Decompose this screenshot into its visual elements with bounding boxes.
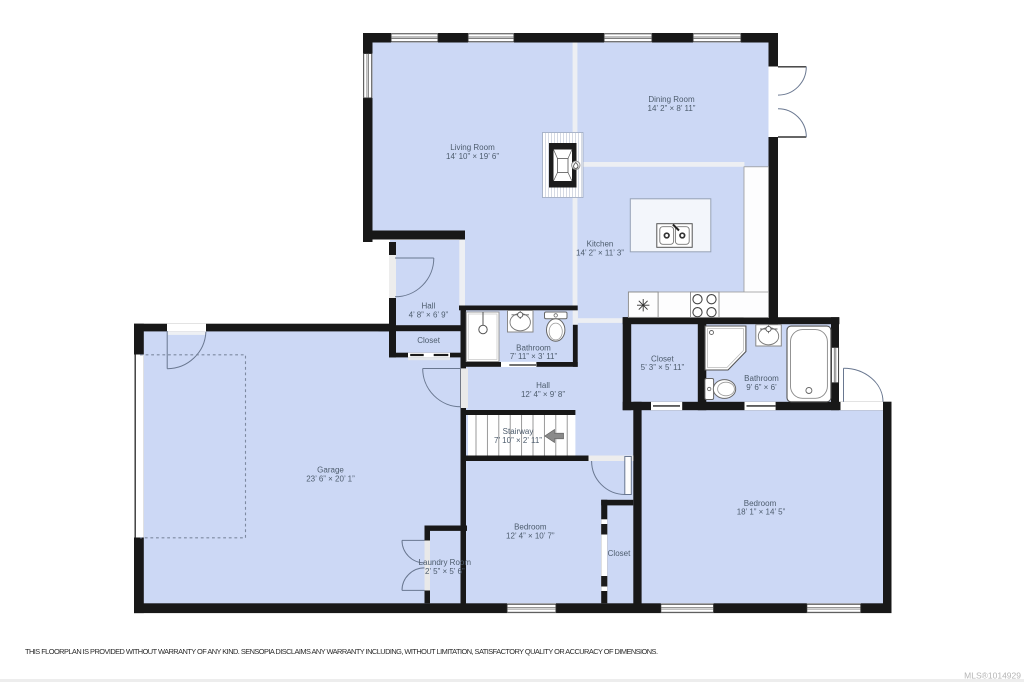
svg-text:7’ 11” × 3’ 11”: 7’ 11” × 3’ 11”	[510, 352, 558, 361]
svg-text:14’ 2” × 8’ 11”: 14’ 2” × 8’ 11”	[648, 104, 696, 113]
svg-text:Hall: Hall	[422, 302, 436, 311]
svg-text:Closet: Closet	[608, 549, 631, 558]
svg-text:Garage: Garage	[317, 466, 344, 475]
svg-text:THIS FLOORPLAN IS PROVIDED WIT: THIS FLOORPLAN IS PROVIDED WITHOUT WARRA…	[25, 647, 658, 656]
svg-text:Laundry Room: Laundry Room	[419, 558, 472, 567]
svg-text:14’ 10” × 19’ 6”: 14’ 10” × 19’ 6”	[446, 152, 499, 161]
svg-text:Dining Room: Dining Room	[648, 95, 695, 104]
svg-text:14’ 2” × 11’ 3”: 14’ 2” × 11’ 3”	[576, 248, 624, 257]
svg-text:Stairway: Stairway	[503, 427, 534, 436]
svg-text:Bathroom: Bathroom	[744, 374, 779, 383]
svg-text:Closet: Closet	[417, 336, 440, 345]
svg-text:4’ 8” × 6’ 9”: 4’ 8” × 6’ 9”	[409, 310, 449, 319]
svg-text:5’ 3” × 5’ 11”: 5’ 3” × 5’ 11”	[641, 363, 685, 372]
svg-text:12’ 4” × 9’ 8”: 12’ 4” × 9’ 8”	[521, 390, 565, 399]
svg-text:18’ 1” × 14’ 5”: 18’ 1” × 14’ 5”	[737, 508, 786, 517]
svg-text:7’ 10” × 2’ 11”: 7’ 10” × 2’ 11”	[494, 436, 542, 445]
svg-text:23’ 6” × 20’ 1”: 23’ 6” × 20’ 1”	[306, 474, 355, 483]
svg-text:Living Room: Living Room	[450, 143, 495, 152]
svg-text:Kitchen: Kitchen	[587, 240, 614, 249]
svg-text:Bedroom: Bedroom	[744, 499, 777, 508]
svg-text:12’ 4” × 10’ 7”: 12’ 4” × 10’ 7”	[506, 531, 555, 540]
svg-text:Bedroom: Bedroom	[514, 523, 547, 532]
svg-text:Hall: Hall	[536, 381, 550, 390]
svg-text:2’ 5” × 5’ 6”: 2’ 5” × 5’ 6”	[425, 567, 465, 576]
svg-text:Bathroom: Bathroom	[516, 343, 551, 352]
svg-text:9’ 6” × 6’: 9’ 6” × 6’	[746, 383, 777, 392]
svg-text:Closet: Closet	[651, 354, 674, 363]
svg-text:MLS®1014929: MLS®1014929	[964, 671, 1021, 681]
